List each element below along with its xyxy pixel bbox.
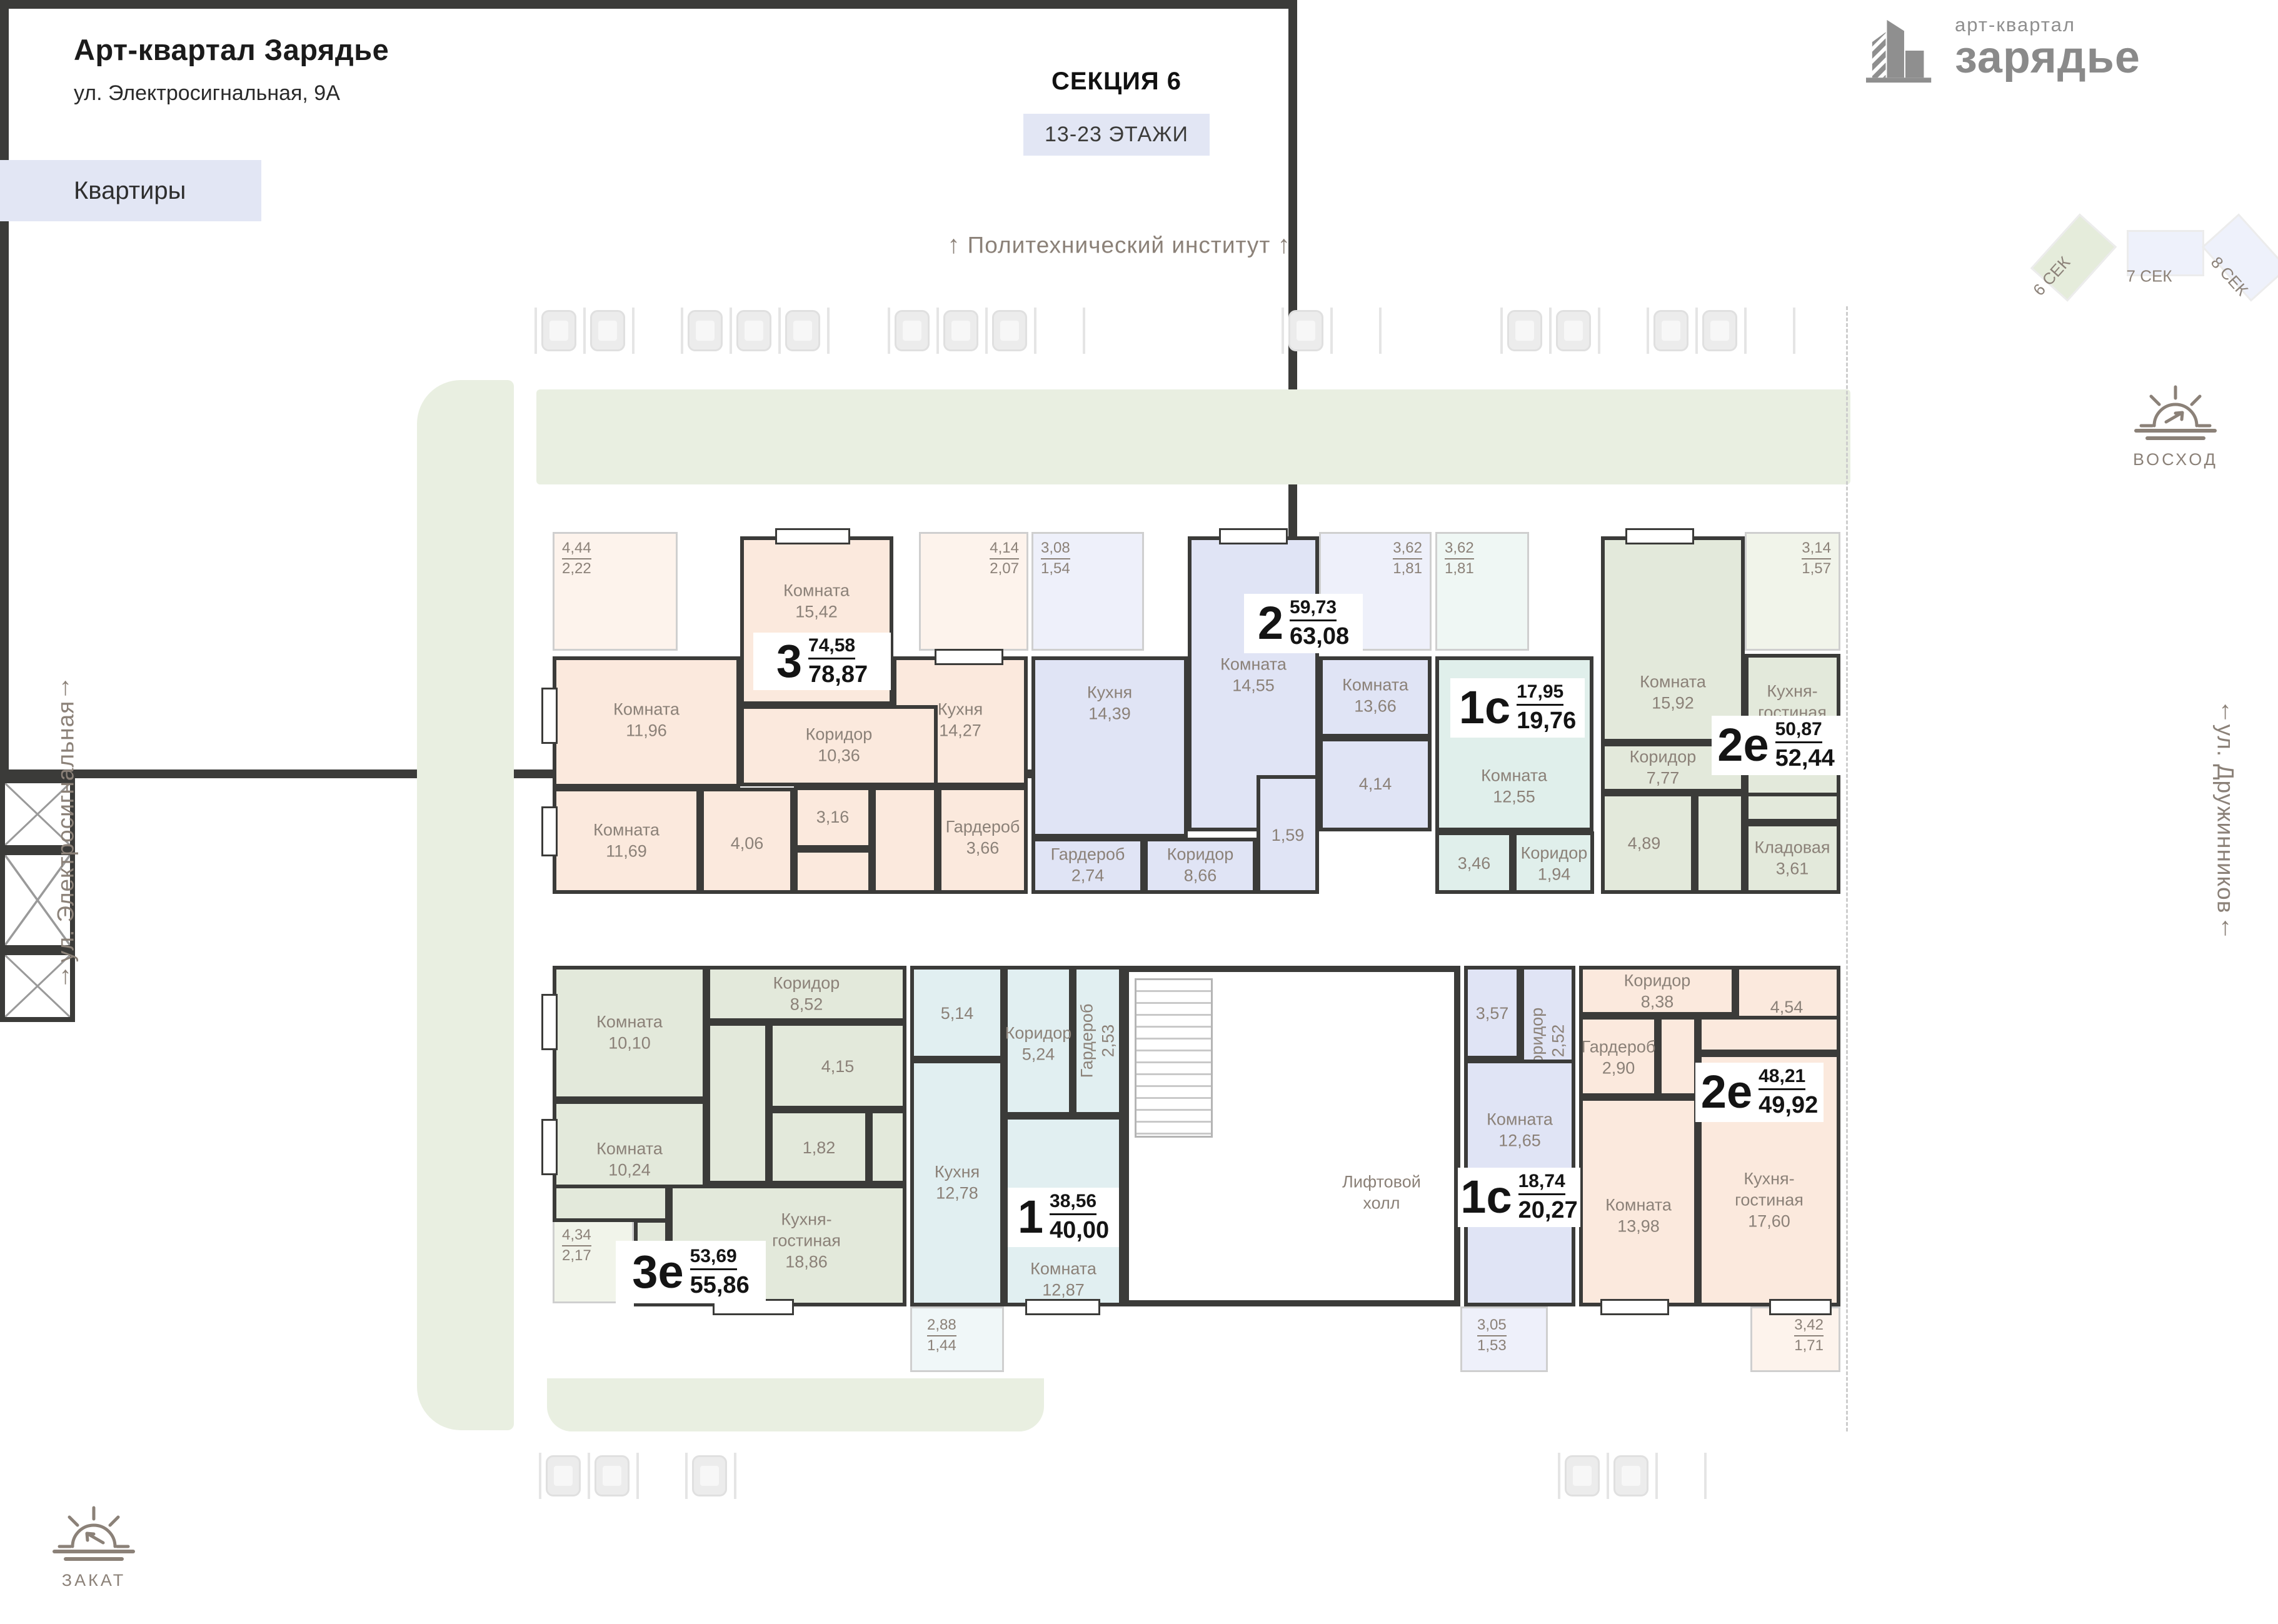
lawn-strip <box>547 1378 1044 1431</box>
room-label: Комната12,87 <box>1030 1258 1096 1301</box>
apartment-living-area: 59,73 <box>1290 597 1337 621</box>
room-label: Комната15,42 <box>783 580 850 623</box>
sunset-label: ЗАКАТ <box>47 1571 141 1590</box>
room-cell <box>872 786 938 894</box>
tab-apartments[interactable]: Квартиры <box>0 160 261 221</box>
room-label: Комната13,66 <box>1342 674 1408 717</box>
room-label: Комната13,98 <box>1605 1195 1672 1237</box>
apartment-badge-3[interactable]: 374,5878,87 <box>753 633 891 690</box>
apartment-living-area: 53,69 <box>690 1246 737 1270</box>
landmark-top-label: Политехнический институт <box>968 233 1271 258</box>
window-icon <box>1025 1299 1100 1315</box>
room-label: 1,59 <box>1272 825 1305 846</box>
apartment-total-area: 49,92 <box>1759 1092 1818 1119</box>
room-label: Коридор8,52 <box>773 973 840 1015</box>
car-icon <box>785 310 820 351</box>
room-label: Кухня-гостиная17,60 <box>1735 1168 1804 1231</box>
window-icon <box>541 1119 558 1175</box>
parking-divider <box>1695 308 1698 354</box>
balcony-area-label: 4,142,07 <box>990 539 1019 578</box>
room-cell <box>869 1110 906 1185</box>
car-icon <box>1556 310 1591 351</box>
balcony: 3,081,54 <box>1031 532 1144 651</box>
car-icon <box>1702 310 1737 351</box>
apartment-living-area: 17,95 <box>1517 681 1563 706</box>
room-label: Гардероб2,53 <box>1076 1004 1119 1078</box>
apartment-total-area: 63,08 <box>1290 623 1349 650</box>
car-icon <box>595 1455 630 1496</box>
apartment-type: 1 <box>1018 1198 1043 1237</box>
parking-divider <box>681 308 683 354</box>
parking-divider <box>985 308 988 354</box>
window-icon <box>1769 1299 1832 1315</box>
parking-divider <box>827 308 830 354</box>
parking-divider <box>1330 308 1333 354</box>
room-label: 5,14 <box>941 1003 974 1025</box>
page-address: ул. Электросигнальная, 9А <box>74 81 340 106</box>
parking-divider <box>1379 308 1382 354</box>
room-cell <box>1745 793 1840 823</box>
car-icon <box>1613 1455 1648 1496</box>
street-left-label: ул. Электросигнальная <box>53 701 79 963</box>
elevator-hall-label: Лифтовойхолл <box>1342 1171 1421 1214</box>
sunrise-widget: ВОСХОД <box>2129 384 2222 469</box>
parking-divider <box>734 1453 736 1499</box>
car-icon <box>895 310 930 351</box>
apartment-badge-2е[interactable]: 2е50,8752,44 <box>1712 716 1840 775</box>
tab-apartments-label: Квартиры <box>74 177 186 205</box>
parking-divider <box>1704 1453 1707 1499</box>
lawn-strip <box>536 389 1850 484</box>
parking-divider <box>539 1453 541 1499</box>
floors-label: 13-23 ЭТАЖИ <box>1045 123 1188 147</box>
car-icon <box>590 310 625 351</box>
balcony-area-label: 3,421,71 <box>1794 1316 1824 1355</box>
room-label: Коридор7,77 <box>1630 746 1697 789</box>
balcony: 3,421,71 <box>1750 1306 1840 1372</box>
parking-divider <box>1083 308 1085 354</box>
apartment-living-area: 38,56 <box>1050 1191 1096 1215</box>
parking-divider <box>1598 308 1600 354</box>
page-title: Арт-квартал Зарядье <box>74 33 389 67</box>
window-icon <box>541 688 558 744</box>
apartment-badge-1с[interactable]: 1с17,9519,76 <box>1450 678 1585 738</box>
balcony-area-label: 3,621,81 <box>1393 539 1422 578</box>
room-cell <box>1698 1016 1840 1053</box>
lawn-strip <box>417 380 514 1430</box>
staircase <box>1135 978 1213 1138</box>
sunrise-label: ВОСХОД <box>2129 450 2222 469</box>
window-icon <box>1219 528 1288 544</box>
room-label: Комната10,10 <box>596 1011 663 1054</box>
car-icon <box>1653 310 1688 351</box>
apartment-total-area: 40,00 <box>1050 1217 1109 1244</box>
balcony-area-label: 3,621,81 <box>1445 539 1474 578</box>
parking-divider <box>1500 308 1503 354</box>
logo: арт-квартал зарядье <box>1866 14 2278 95</box>
room-label: 4,06 <box>731 833 764 855</box>
minimap-section-label: 7 СЕК <box>2127 267 2172 286</box>
apartment-badge-1[interactable]: 138,5640,00 <box>1008 1188 1119 1247</box>
room-label: Коридор1,94 <box>1521 843 1588 885</box>
parking-divider <box>1655 1453 1658 1499</box>
apartment-living-area: 18,74 <box>1518 1171 1565 1195</box>
room-label: Комната11,96 <box>613 699 680 741</box>
room-cell <box>706 1022 769 1185</box>
up-arrow-icon: ↑ <box>1278 231 1291 259</box>
apartment-badge-1с[interactable]: 1с18,7420,27 <box>1458 1168 1580 1227</box>
apartment-total-area: 20,27 <box>1518 1197 1578 1224</box>
parking-divider <box>1647 308 1649 354</box>
balcony: 2,881,44 <box>910 1306 1004 1372</box>
logo-line2: зарядье <box>1955 36 2140 79</box>
window-icon <box>541 806 558 856</box>
room-label: 3,46 <box>1458 853 1491 875</box>
apartment-total-area: 52,44 <box>1775 745 1835 772</box>
apartment-total-area: 78,87 <box>808 661 868 688</box>
up-arrow-icon: ↑ <box>2219 913 2232 941</box>
parking-divider <box>1793 308 1795 354</box>
room-cell <box>1658 1016 1698 1097</box>
apartment-type: 1с <box>1459 688 1510 728</box>
room-label: Кухня-гостиная18,86 <box>772 1209 841 1272</box>
sunrise-icon <box>2129 384 2222 444</box>
apartment-living-area: 48,21 <box>1759 1066 1805 1090</box>
room-label: Гардероб2,74 <box>1051 844 1125 886</box>
parking-divider <box>534 308 537 354</box>
car-icon <box>541 310 576 351</box>
room-label: Кухня14,39 <box>1087 682 1132 724</box>
street-right: ↑ ул. Дружинников ↑ <box>2212 704 2240 933</box>
room-label: Коридор5,24 <box>1005 1023 1072 1065</box>
parking-divider <box>1549 308 1552 354</box>
car-icon <box>692 1455 727 1496</box>
room-cell <box>794 849 872 894</box>
parking-divider <box>778 308 781 354</box>
up-arrow-icon: ↑ <box>59 673 73 701</box>
room-label: 3,16 <box>816 807 850 828</box>
window-icon <box>1600 1299 1669 1315</box>
parking-divider <box>888 308 890 354</box>
room-label: Кухня12,78 <box>935 1161 980 1204</box>
room-label: 4,89 <box>1628 833 1661 855</box>
room-label: Кладовая3,61 <box>1755 837 1830 880</box>
room-label: Комната14,55 <box>1220 654 1287 696</box>
balcony-area-label: 3,141,57 <box>1802 539 1831 578</box>
street-left: ↑ ул. Электросигнальная ↑ <box>52 680 80 982</box>
balcony-area-label: 3,051,53 <box>1477 1316 1507 1355</box>
window-icon <box>935 649 1003 665</box>
window-icon <box>541 994 558 1050</box>
parking-divider <box>936 308 939 354</box>
up-arrow-icon: ↑ <box>59 962 73 990</box>
balcony: 4,142,07 <box>919 532 1028 651</box>
car-icon <box>1565 1455 1600 1496</box>
apartment-living-area: 74,58 <box>808 635 855 659</box>
apartment-badge-3е[interactable]: 3е53,6955,86 <box>616 1241 766 1303</box>
room-label: Комната10,24 <box>596 1138 663 1181</box>
apartment-total-area: 55,86 <box>690 1272 750 1299</box>
parking-divider <box>730 308 732 354</box>
street-right-label: ул. Дружинников <box>2213 724 2239 914</box>
parking-divider <box>1744 308 1747 354</box>
up-arrow-icon: ↑ <box>947 231 960 259</box>
window-icon <box>1625 528 1694 544</box>
car-icon <box>1288 310 1323 351</box>
room-label: Коридор8,66 <box>1167 844 1234 886</box>
balcony: 3,051,53 <box>1460 1306 1548 1372</box>
room-label: Комната12,55 <box>1481 765 1547 808</box>
apartment-badge-2[interactable]: 259,7363,08 <box>1244 594 1363 653</box>
room-label: 1,82 <box>803 1138 836 1159</box>
room-label: Коридор10,36 <box>806 724 873 766</box>
apartment-type: 1с <box>1460 1178 1512 1217</box>
window-icon <box>775 528 850 544</box>
room-label: 4,15 <box>821 1056 855 1078</box>
car-icon <box>736 310 771 351</box>
parking-divider <box>588 1453 590 1499</box>
apartment-badge-2е[interactable]: 2е48,2149,92 <box>1695 1063 1824 1122</box>
sunset-icon <box>47 1505 141 1565</box>
balcony-area-label: 3,081,54 <box>1041 539 1070 578</box>
section-title: СЕКЦИЯ 6 <box>1051 68 1182 96</box>
balcony-area-label: 2,881,44 <box>927 1316 956 1355</box>
page: Арт-квартал Зарядье ул. Электросигнальна… <box>0 0 2278 1624</box>
landmark-top: ↑ Политехнический институт ↑ <box>947 231 1290 259</box>
room-label: Гардероб3,66 <box>946 816 1020 859</box>
apartment-type: 3 <box>776 642 802 681</box>
car-icon <box>943 310 978 351</box>
parking-divider <box>1607 1453 1609 1499</box>
room-label: Комната12,65 <box>1487 1109 1553 1151</box>
room-label: Кухня14,27 <box>938 699 983 741</box>
apartment-living-area: 50,87 <box>1775 719 1822 743</box>
apartment-total-area: 19,76 <box>1517 708 1576 734</box>
section-boundary-line <box>1846 306 1848 1431</box>
car-icon <box>1507 310 1542 351</box>
parking-divider <box>1034 308 1036 354</box>
apartment-type: 3е <box>632 1253 683 1292</box>
room-label: Комната15,92 <box>1640 671 1706 714</box>
apartment-type: 2 <box>1258 604 1283 643</box>
room-label: Коридор8,38 <box>1624 970 1691 1013</box>
parking-divider <box>632 308 635 354</box>
parking-divider <box>1558 1453 1560 1499</box>
apartment-type: 2е <box>1701 1073 1752 1112</box>
room-label: 4,14 <box>1359 774 1392 795</box>
balcony: 4,442,22 <box>553 532 678 651</box>
parking-divider <box>685 1453 688 1499</box>
room-cell <box>1695 793 1745 894</box>
car-icon <box>992 310 1027 351</box>
parking-divider <box>636 1453 639 1499</box>
up-arrow-icon: ↑ <box>2219 696 2232 724</box>
room-label: Комната11,69 <box>593 820 660 862</box>
balcony-area-label: 4,442,22 <box>562 539 591 578</box>
parking-divider <box>583 308 586 354</box>
car-icon <box>546 1455 581 1496</box>
logo-building-icon <box>1866 14 1940 88</box>
balcony: 3,141,57 <box>1745 532 1840 651</box>
apartment-type: 2е <box>1717 726 1769 765</box>
room-label: Гардероб2,90 <box>1582 1036 1656 1079</box>
floors-chip: 13-23 ЭТАЖИ <box>1023 114 1210 156</box>
room-label: 4,54 <box>1770 997 1804 1018</box>
room-label: 3,57 <box>1476 1003 1509 1025</box>
parking-divider <box>1282 308 1284 354</box>
balcony: 3,621,81 <box>1435 532 1529 651</box>
car-icon <box>688 310 723 351</box>
sunset-widget: ЗАКАТ <box>47 1505 141 1590</box>
room-cell <box>553 1185 669 1222</box>
balcony-area-label: 4,342,17 <box>562 1226 591 1265</box>
